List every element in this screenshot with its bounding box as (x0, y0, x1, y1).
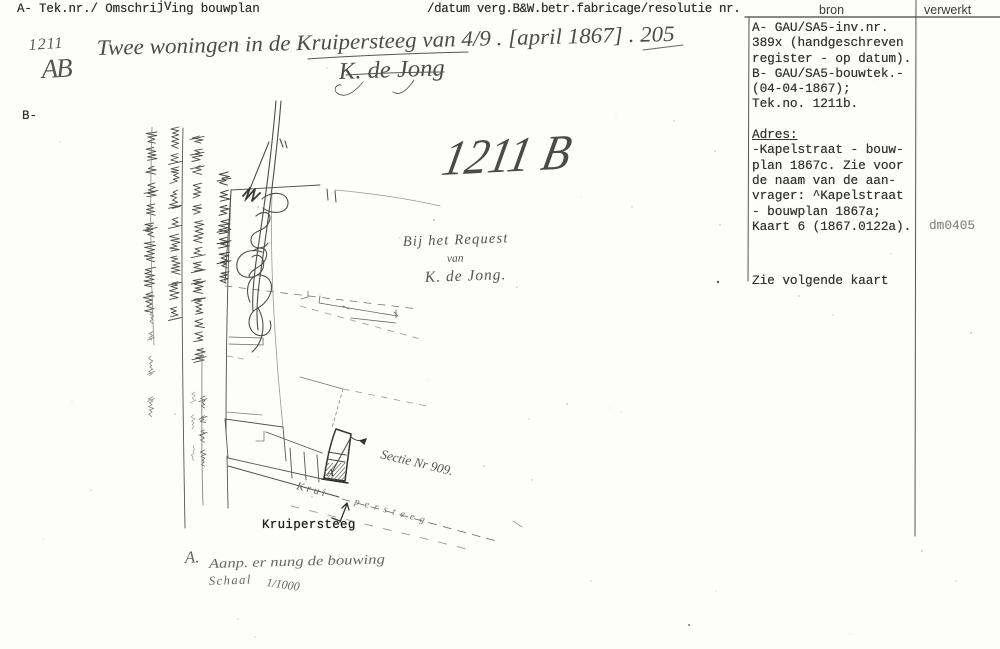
svg-text:K. de Jong: K. de Jong (337, 55, 445, 85)
svg-text:Bij het Request: Bij het Request (403, 230, 509, 250)
svg-text:1211: 1211 (28, 35, 64, 54)
svg-text:Schaal: Schaal (209, 573, 252, 588)
svg-text:1211 B: 1211 B (438, 124, 576, 186)
svg-text:1/1000: 1/1000 (266, 575, 301, 594)
svg-text:persteeg: persteeg (352, 496, 431, 527)
svg-text:Aanp. er nung de bouwing: Aanp. er nung de bouwing (207, 551, 385, 571)
svg-text:van: van (447, 252, 464, 265)
svg-text:AB: AB (39, 52, 73, 84)
svg-text:K. de Jong.: K. de Jong. (424, 266, 507, 286)
svg-text:A.: A. (183, 547, 200, 567)
svg-text:Sectie Nr 909.: Sectie Nr 909. (379, 446, 454, 478)
svg-text:A: A (326, 467, 334, 479)
